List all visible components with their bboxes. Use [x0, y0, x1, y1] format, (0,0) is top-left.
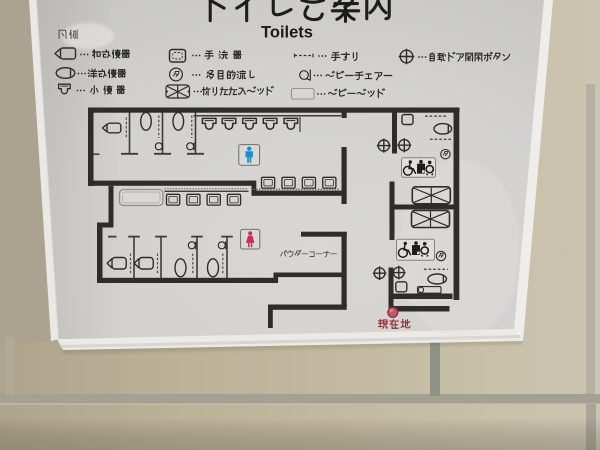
svg-text:Toilets: Toilets: [261, 24, 313, 42]
